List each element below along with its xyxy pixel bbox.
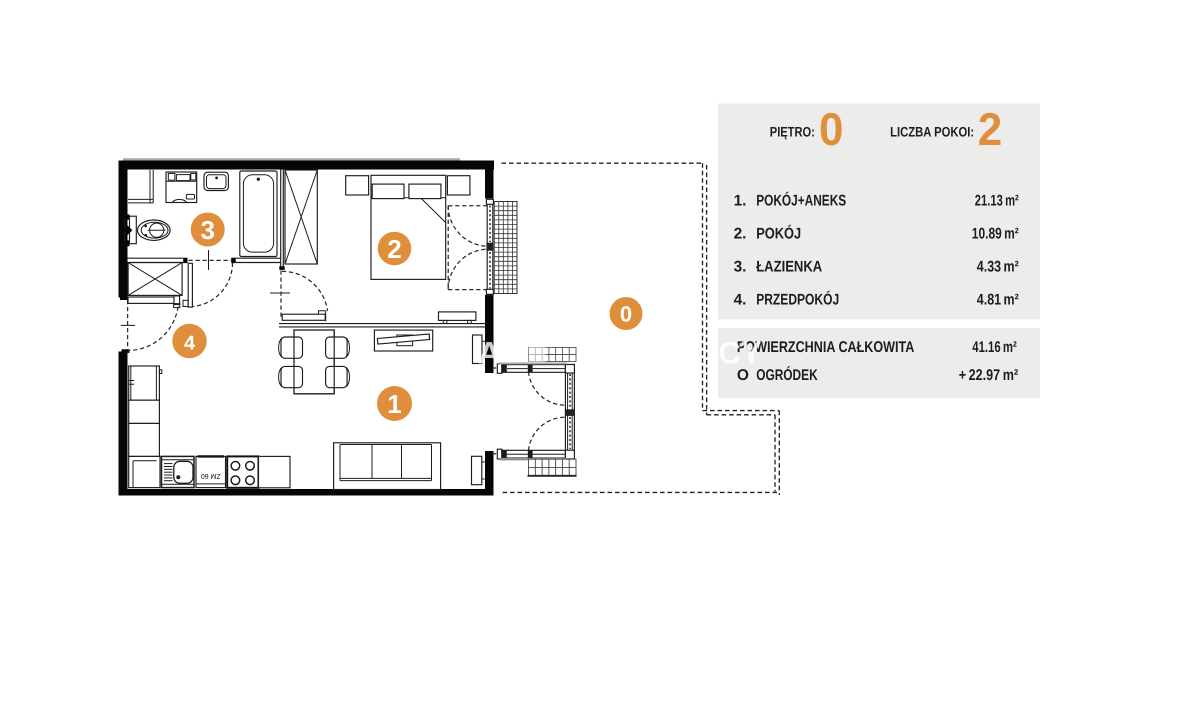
svg-text:POWIERZCHNIA CAŁKOWITA: POWIERZCHNIA CAŁKOWITA	[737, 339, 915, 356]
svg-text:2.: 2.	[734, 226, 747, 243]
svg-text:1: 1	[387, 389, 401, 419]
svg-text:2: 2	[387, 234, 401, 264]
svg-text:21.13 m²: 21.13 m²	[975, 192, 1019, 209]
svg-text:4: 4	[184, 333, 196, 355]
svg-text:POKÓJ+ANEKS: POKÓJ+ANEKS	[756, 191, 846, 209]
svg-text:PRZEDPOKÓJ: PRZEDPOKÓJ	[756, 291, 839, 309]
svg-text:+ 22.97 m²: + 22.97 m²	[959, 367, 1019, 384]
svg-text:PIĘTRO:: PIĘTRO:	[770, 125, 815, 140]
svg-text:OGRÓDEK: OGRÓDEK	[756, 366, 818, 384]
svg-text:CY: CY	[719, 336, 762, 371]
svg-text:POKÓJ: POKÓJ	[756, 225, 801, 243]
svg-text:0: 0	[620, 301, 632, 326]
svg-text:A: A	[478, 336, 500, 371]
svg-text:2: 2	[978, 103, 1003, 155]
svg-text:1.: 1.	[734, 192, 747, 209]
svg-text:0: 0	[819, 103, 844, 155]
svg-text:4.33 m²: 4.33 m²	[977, 259, 1019, 276]
svg-text:4.81 m²: 4.81 m²	[977, 292, 1019, 309]
svg-text:41.16 m²: 41.16 m²	[972, 339, 1017, 356]
svg-text:10.89 m²: 10.89 m²	[972, 226, 1019, 243]
svg-text:3: 3	[200, 215, 214, 245]
svg-text:LICZBA POKOI:: LICZBA POKOI:	[890, 125, 974, 140]
svg-text:ŁAZIENKA: ŁAZIENKA	[756, 259, 822, 276]
svg-text:3.: 3.	[734, 259, 747, 276]
svg-text:ZM 60: ZM 60	[201, 472, 221, 479]
svg-text:4.: 4.	[734, 292, 747, 309]
